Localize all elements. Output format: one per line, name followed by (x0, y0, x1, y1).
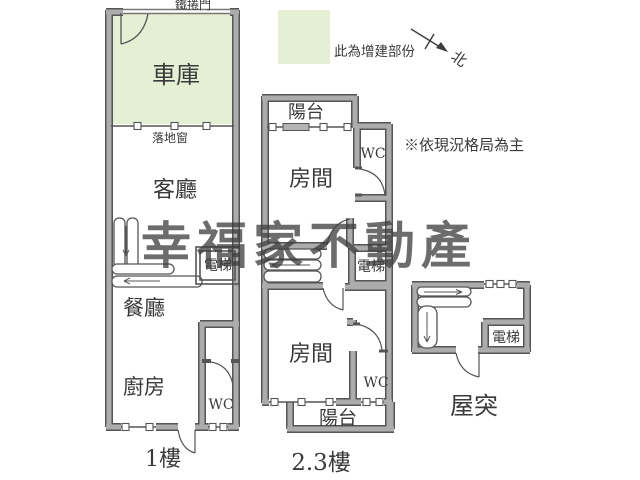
floor23-wc-bottom-door (353, 324, 388, 351)
label-floor1-wc: WC (208, 397, 233, 413)
label-rooftop-elevator: 電梯 (492, 330, 520, 346)
unit-floor23: 陽台 房間 WC 電梯 房間 WC 陽台 2.3樓 (262, 96, 394, 476)
label-kitchen: 廚房 (123, 375, 165, 399)
label-balcony-top: 陽台 (288, 102, 324, 123)
watermark-text: 幸福家不動產 (141, 216, 477, 275)
north-compass: 北 (411, 29, 470, 71)
label-french-window: 落地窗 (152, 131, 188, 145)
label-rolling-door: 鐵捲門 (175, 0, 211, 12)
label-wc-top: WC (360, 146, 385, 162)
label-garage: 車庫 (152, 61, 200, 89)
legend: 此為增建部份 (278, 10, 415, 64)
floor-plan-canvas: 鐵捲門 車庫 落地窗 客廳 電梯 餐廳 廚房 WC 1樓 (0, 0, 640, 480)
rooftop-stairs (417, 287, 471, 348)
note-current-layout: ※依現況格局為主 (404, 136, 524, 154)
rooftop-window (484, 281, 517, 288)
floor23-balcony-top-window (267, 124, 352, 131)
label-floor23-name: 2.3樓 (291, 450, 351, 476)
label-floor1-name: 1樓 (145, 447, 181, 472)
floor23-wc-top-door (355, 168, 385, 196)
label-room-top: 房間 (289, 167, 333, 192)
label-room-bottom: 房間 (289, 342, 333, 367)
floor23-room-bottom-door (323, 288, 343, 310)
label-living-room: 客廳 (153, 178, 197, 203)
compass-arrowhead (436, 42, 448, 52)
label-wc-bottom: WC (363, 375, 388, 391)
compass-north-label: 北 (448, 47, 471, 70)
legend-swatch (278, 10, 330, 64)
unit-rooftop: 電梯 屋突 (412, 281, 530, 421)
label-rooftop-name: 屋突 (450, 392, 498, 420)
label-dining-room: 餐廳 (123, 296, 165, 320)
floor-plan-svg: 鐵捲門 車庫 落地窗 客廳 電梯 餐廳 廚房 WC 1樓 (0, 0, 640, 480)
legend-label: 此為增建部份 (334, 44, 415, 60)
label-balcony-bottom: 陽台 (319, 407, 357, 429)
rooftop-door (456, 352, 479, 377)
